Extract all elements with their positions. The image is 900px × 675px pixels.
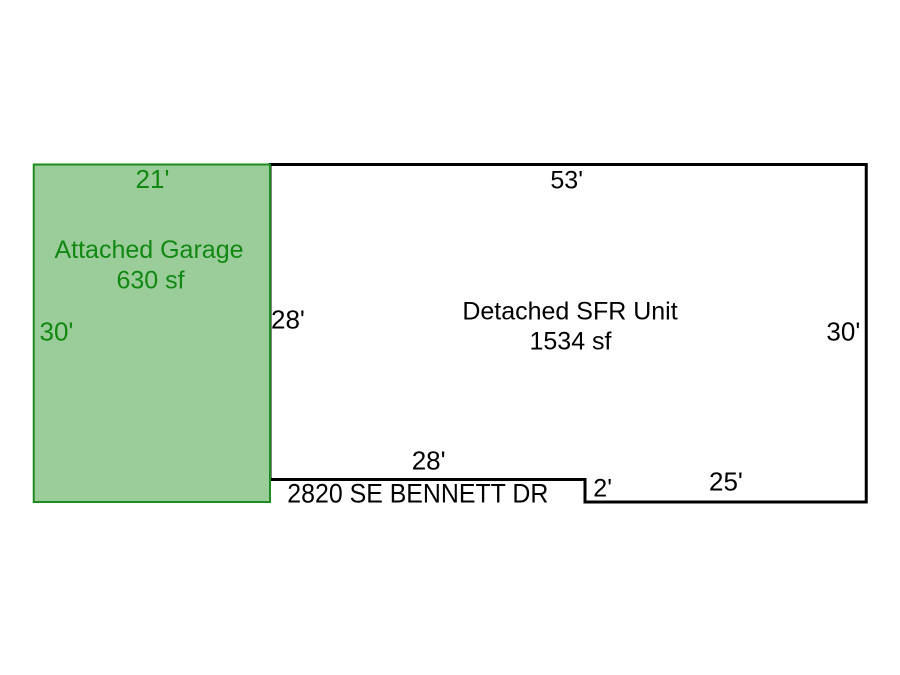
svg-text:2820 SE BENNETT DR: 2820 SE BENNETT DR — [287, 479, 548, 509]
svg-text:630 sf: 630 sf — [116, 267, 184, 295]
svg-text:28': 28' — [271, 304, 305, 334]
svg-text:28': 28' — [412, 446, 446, 476]
svg-text:30': 30' — [826, 317, 860, 347]
svg-text:2': 2' — [593, 474, 612, 502]
svg-text:1534 sf: 1534 sf — [529, 327, 611, 355]
svg-text:25': 25' — [709, 467, 743, 497]
svg-text:30': 30' — [40, 317, 74, 347]
svg-text:53': 53' — [550, 167, 583, 195]
svg-text:Detached SFR Unit: Detached SFR Unit — [462, 297, 677, 325]
svg-text:Attached Garage: Attached Garage — [54, 236, 243, 264]
svg-text:21': 21' — [136, 164, 170, 194]
